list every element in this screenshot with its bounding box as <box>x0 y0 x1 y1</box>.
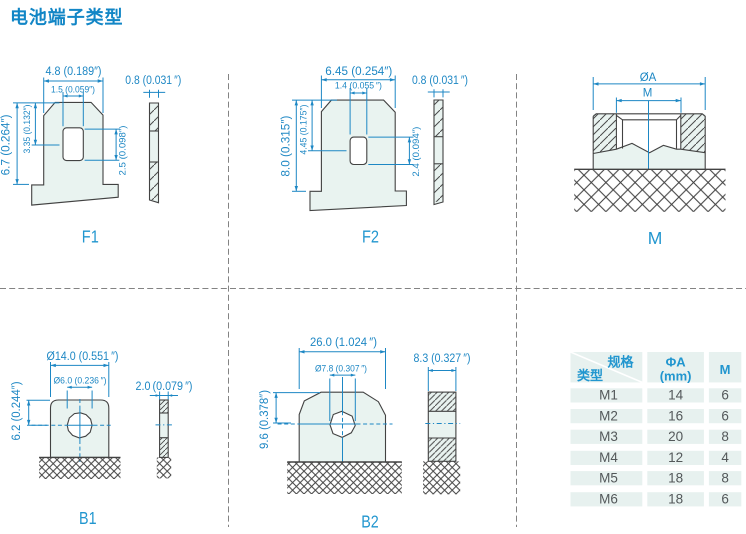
svg-text:8: 8 <box>721 470 729 485</box>
svg-text:8.0 (0.315″): 8.0 (0.315″) <box>281 115 293 176</box>
svg-text:B2: B2 <box>361 512 379 532</box>
svg-text:12: 12 <box>668 450 683 465</box>
svg-text:3.35 (0.132″): 3.35 (0.132″) <box>22 105 33 154</box>
svg-text:(mm): (mm) <box>660 369 692 384</box>
svg-text:Ø7.8 (0.307 ″): Ø7.8 (0.307 ″) <box>315 364 367 375</box>
svg-text:18: 18 <box>668 470 683 485</box>
svg-text:26.0 (1.024 ″): 26.0 (1.024 ″) <box>310 337 377 349</box>
svg-text:16: 16 <box>668 408 683 423</box>
svg-text:14: 14 <box>668 388 684 403</box>
svg-text:6: 6 <box>721 388 729 403</box>
svg-text:0.8 (0.031 ″): 0.8 (0.031 ″) <box>125 75 181 87</box>
svg-text:规格: 规格 <box>607 355 634 370</box>
svg-text:M1: M1 <box>599 388 618 403</box>
svg-text:6: 6 <box>721 408 729 423</box>
svg-text:ØA: ØA <box>640 72 657 84</box>
svg-text:F2: F2 <box>362 227 379 247</box>
svg-text:M2: M2 <box>599 408 618 423</box>
svg-text:6.2 (0.244″): 6.2 (0.244″) <box>11 381 23 440</box>
svg-text:0.8 (0.031 ″): 0.8 (0.031 ″) <box>412 75 468 87</box>
svg-text:M: M <box>720 362 731 377</box>
svg-text:Ø6.0 (0.236 ″): Ø6.0 (0.236 ″) <box>54 376 107 387</box>
svg-text:F1: F1 <box>82 227 99 247</box>
svg-text:2.0 (0.079 ″): 2.0 (0.079 ″) <box>136 381 193 393</box>
svg-text:1.5 (0.059″): 1.5 (0.059″) <box>51 85 95 96</box>
svg-text:20: 20 <box>668 429 683 444</box>
svg-text:2.5 (0.098″): 2.5 (0.098″) <box>118 126 129 176</box>
svg-text:电池端子类型: 电池端子类型 <box>10 7 123 28</box>
svg-text:2.4 (0.094″): 2.4 (0.094″) <box>411 127 422 177</box>
svg-text:Ø14.0 (0.551 ″): Ø14.0 (0.551 ″) <box>47 351 119 363</box>
svg-text:8: 8 <box>721 429 729 444</box>
svg-text:4.8 (0.189″): 4.8 (0.189″) <box>46 66 102 78</box>
svg-text:M3: M3 <box>599 429 618 444</box>
svg-text:6.7 (0.264″): 6.7 (0.264″) <box>1 114 13 175</box>
svg-text:18: 18 <box>668 492 683 507</box>
svg-text:M: M <box>648 228 663 248</box>
svg-text:M5: M5 <box>599 470 618 485</box>
svg-text:ΦA: ΦA <box>666 355 687 370</box>
svg-text:1.4 (0.055 ″): 1.4 (0.055 ″) <box>335 81 382 92</box>
svg-text:6.45 (0.254″): 6.45 (0.254″) <box>325 66 392 78</box>
svg-text:B1: B1 <box>79 508 97 528</box>
svg-text:类型: 类型 <box>577 368 603 383</box>
svg-text:M6: M6 <box>599 492 618 507</box>
svg-text:4.45 (0.175″): 4.45 (0.175″) <box>299 105 310 155</box>
svg-text:M: M <box>643 88 653 100</box>
svg-text:8.3 (0.327 ″): 8.3 (0.327 ″) <box>414 353 471 365</box>
svg-text:4: 4 <box>721 450 729 465</box>
svg-text:9.6 (0.378″): 9.6 (0.378″) <box>259 390 271 449</box>
svg-text:M4: M4 <box>599 450 618 465</box>
svg-text:6: 6 <box>721 492 729 507</box>
